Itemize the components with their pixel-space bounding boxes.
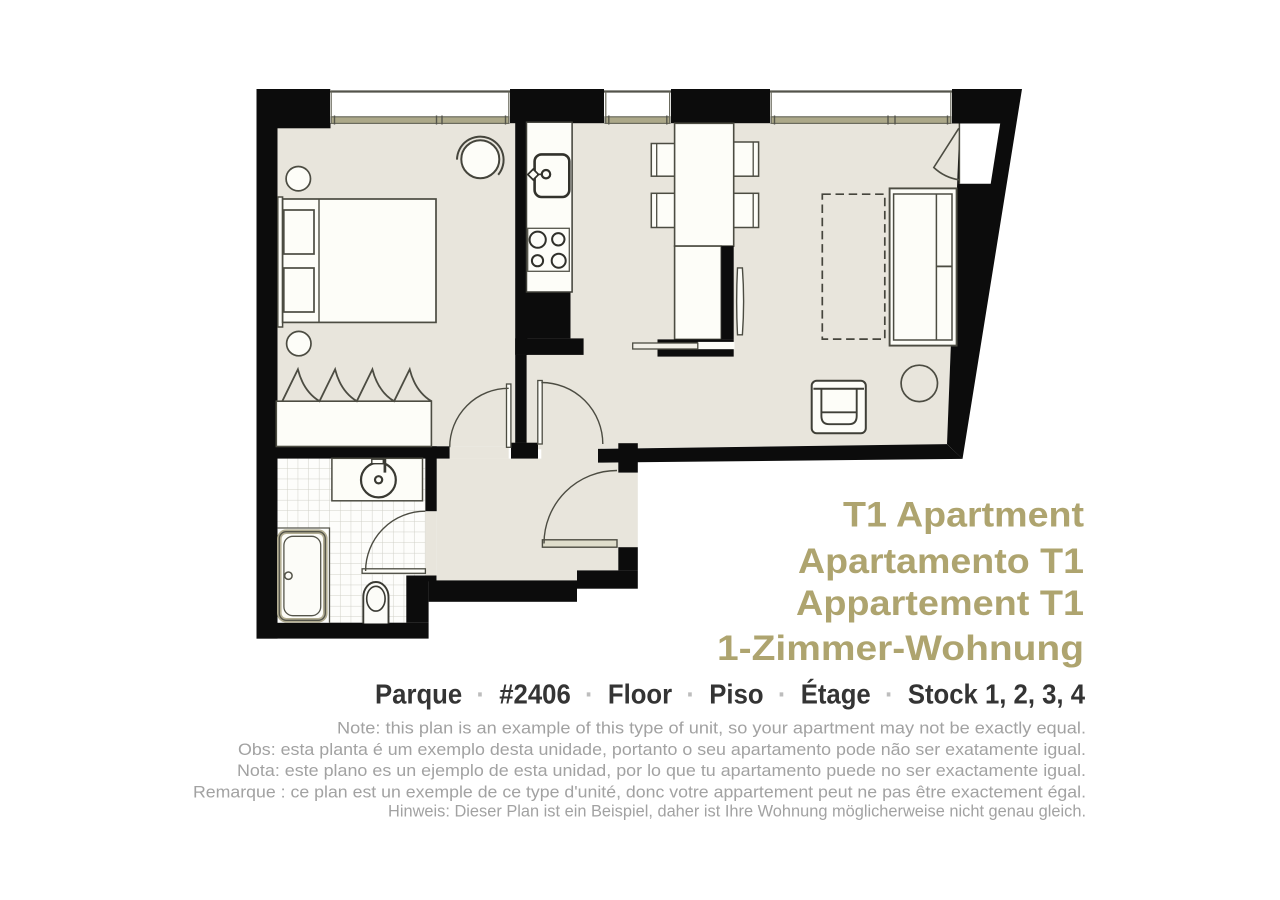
svg-text:Remarque : ce plan est un exem: Remarque : ce plan est un exemple de ce … bbox=[193, 782, 1086, 801]
svg-text:1-Zimmer-Wohnung: 1-Zimmer-Wohnung bbox=[717, 628, 1084, 668]
svg-text:Appartement T1: Appartement T1 bbox=[796, 583, 1084, 623]
svg-text:T1 Apartment: T1 Apartment bbox=[843, 494, 1084, 534]
svg-text:Obs: esta planta é um exemplo: Obs: esta planta é um exemplo desta unid… bbox=[238, 740, 1086, 759]
svg-text:Nota: este plano es un ejemplo: Nota: este plano es un ejemplo de esta u… bbox=[237, 761, 1086, 780]
svg-text:Apartamento T1: Apartamento T1 bbox=[798, 541, 1084, 581]
svg-text:Parque · #2406 · Floor ·: Parque · #2406 · Floor · Piso · Étage · … bbox=[375, 679, 1085, 710]
svg-text:Hinweis: Dieser Plan ist ein B: Hinweis: Dieser Plan ist ein Beispiel, d… bbox=[388, 802, 1086, 821]
svg-text:Note: this plan is an example: Note: this plan is an example of this ty… bbox=[337, 719, 1086, 738]
